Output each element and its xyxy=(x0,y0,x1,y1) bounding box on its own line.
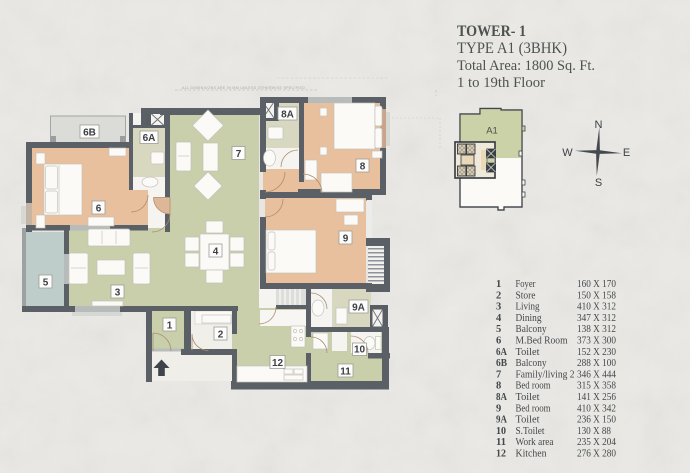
svg-text:N: N xyxy=(595,119,603,131)
svg-text:2: 2 xyxy=(218,330,224,341)
svg-text:7: 7 xyxy=(236,149,242,160)
svg-text:347 X 312: 347 X 312 xyxy=(577,313,616,324)
svg-text:150 X 158: 150 X 158 xyxy=(577,290,616,301)
svg-text:152 X 230: 152 X 230 xyxy=(577,347,616,358)
svg-text:9A: 9A xyxy=(352,303,365,314)
svg-text:TYPE A1 (3BHK): TYPE A1 (3BHK) xyxy=(457,40,567,57)
svg-text:11: 11 xyxy=(496,437,506,448)
svg-text:8A: 8A xyxy=(496,392,507,403)
svg-text:6B: 6B xyxy=(496,358,507,369)
svg-text:288 X 100: 288 X 100 xyxy=(577,358,616,369)
svg-text:Total Area: 1800 Sq. Ft.: Total Area: 1800 Sq. Ft. xyxy=(457,58,595,74)
svg-text:6: 6 xyxy=(96,204,102,215)
svg-text:10: 10 xyxy=(354,345,366,356)
svg-text:Family/living 2: Family/living 2 xyxy=(516,369,575,380)
svg-text:Bed room: Bed room xyxy=(516,381,551,392)
svg-text:Kitchen: Kitchen xyxy=(516,449,548,460)
svg-text:138 X 312: 138 X 312 xyxy=(577,324,616,335)
svg-text:6B: 6B xyxy=(83,128,96,139)
svg-text:8A: 8A xyxy=(281,110,294,121)
svg-text:6A: 6A xyxy=(496,347,507,358)
svg-text:2: 2 xyxy=(496,290,501,301)
svg-text:4: 4 xyxy=(213,247,219,258)
svg-text:Balcony: Balcony xyxy=(516,358,548,369)
svg-text:Toilet: Toilet xyxy=(516,392,540,403)
svg-text:Foyer: Foyer xyxy=(516,279,536,290)
svg-text:7: 7 xyxy=(496,369,501,380)
svg-text:6A: 6A xyxy=(143,133,156,144)
svg-text:9: 9 xyxy=(496,403,501,414)
svg-text:TOWER- 1: TOWER- 1 xyxy=(457,23,526,40)
svg-text:S.Toilet: S.Toilet xyxy=(516,426,545,437)
svg-text:11: 11 xyxy=(340,367,351,378)
svg-text:410 X 342: 410 X 342 xyxy=(577,403,616,414)
svg-text:315 X 358: 315 X 358 xyxy=(577,381,616,392)
svg-text:9: 9 xyxy=(343,234,349,245)
svg-text:6: 6 xyxy=(496,336,501,347)
svg-text:3: 3 xyxy=(115,288,121,299)
svg-text:Toilet: Toilet xyxy=(516,415,540,426)
svg-text:236 X 150: 236 X 150 xyxy=(577,415,616,426)
svg-text:1: 1 xyxy=(167,321,173,332)
svg-text:3: 3 xyxy=(496,302,501,313)
svg-text:ALL DIMENSIONS ARE IN MM UNLES: ALL DIMENSIONS ARE IN MM UNLESS OTHERWIS… xyxy=(182,86,305,90)
svg-text:Balcony: Balcony xyxy=(516,324,548,335)
svg-text:M.Bed Room: M.Bed Room xyxy=(516,336,568,347)
svg-text:8: 8 xyxy=(360,162,366,173)
svg-text:Store: Store xyxy=(516,290,536,301)
svg-text:A1: A1 xyxy=(486,126,498,137)
svg-text:Dining: Dining xyxy=(516,313,543,324)
svg-text:Toilet: Toilet xyxy=(516,347,540,358)
svg-text:5: 5 xyxy=(43,278,49,289)
svg-text:373 X 300: 373 X 300 xyxy=(577,336,616,347)
svg-text:8: 8 xyxy=(496,381,501,392)
svg-text:Living: Living xyxy=(516,302,541,313)
svg-text:10: 10 xyxy=(496,426,506,437)
svg-text:1 to 19th Floor: 1 to 19th Floor xyxy=(457,75,545,91)
svg-text:Work area: Work area xyxy=(516,437,554,448)
svg-text:160 X 170: 160 X 170 xyxy=(577,279,616,290)
svg-text:1: 1 xyxy=(496,279,501,290)
svg-text:130 X 88: 130 X 88 xyxy=(577,426,611,437)
svg-text:12: 12 xyxy=(496,449,506,460)
svg-text:410 X 312: 410 X 312 xyxy=(577,302,616,313)
svg-text:9A: 9A xyxy=(496,415,507,426)
svg-text:276 X 280: 276 X 280 xyxy=(577,449,616,460)
svg-text:346 X 444: 346 X 444 xyxy=(577,369,617,380)
svg-text:12: 12 xyxy=(272,358,284,369)
svg-text:S: S xyxy=(595,177,602,189)
svg-text:5: 5 xyxy=(496,324,501,335)
svg-text:235 X 204: 235 X 204 xyxy=(577,437,617,448)
svg-text:Bed room: Bed room xyxy=(516,403,551,414)
svg-text:4: 4 xyxy=(496,313,502,324)
svg-text:141 X 256: 141 X 256 xyxy=(577,392,616,403)
svg-text:E: E xyxy=(623,147,630,159)
svg-text:W: W xyxy=(562,147,573,159)
